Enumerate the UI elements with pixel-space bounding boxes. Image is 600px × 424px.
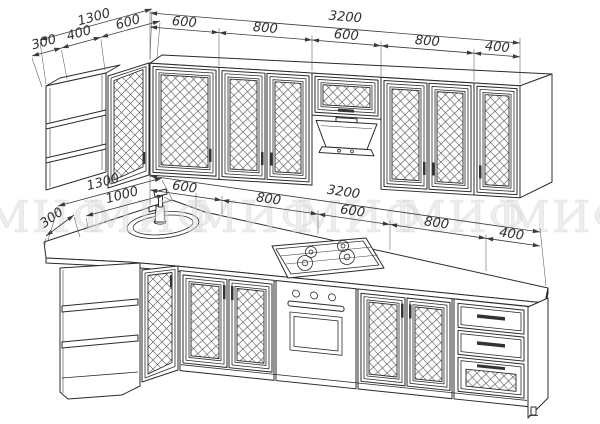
door-handle bbox=[423, 162, 426, 175]
dim-label: 800 bbox=[252, 20, 278, 37]
corner-door-lattice bbox=[148, 273, 172, 375]
dim-label: 400 bbox=[484, 39, 510, 56]
extractor-hood-canopy bbox=[316, 120, 377, 150]
lattice-door bbox=[275, 82, 301, 174]
lattice-door bbox=[369, 302, 397, 377]
dim-label: 600 bbox=[171, 14, 197, 31]
lattice-door bbox=[161, 75, 208, 168]
door-handle bbox=[143, 152, 145, 164]
lattice-door bbox=[191, 284, 219, 359]
door-handle bbox=[231, 286, 234, 300]
shelf-body bbox=[46, 73, 106, 190]
wall-cabinet-600 bbox=[150, 63, 219, 179]
lattice-door bbox=[392, 89, 419, 181]
lattice-door bbox=[237, 288, 264, 363]
wall-corner-cabinet bbox=[108, 63, 149, 188]
lattice-door bbox=[230, 79, 257, 171]
door-handle bbox=[432, 162, 435, 175]
wall-cabinet-800-right bbox=[381, 77, 474, 195]
wall-cabinets bbox=[46, 55, 552, 198]
door-handle bbox=[270, 153, 273, 166]
door-handle bbox=[409, 304, 412, 318]
lattice-flip-door bbox=[323, 85, 370, 108]
door-handle bbox=[170, 275, 172, 287]
base-run-side-panel bbox=[528, 298, 548, 418]
base-open-end-shelf bbox=[60, 263, 140, 399]
lattice-door bbox=[415, 307, 442, 382]
dim-label: 600 bbox=[333, 27, 359, 44]
dim-label: 800 bbox=[414, 33, 440, 50]
door-handle bbox=[261, 152, 264, 165]
dim-label: 3200 bbox=[328, 9, 362, 27]
base-cabinet-800-right bbox=[358, 289, 452, 399]
corner-door-lattice bbox=[114, 70, 143, 181]
leg-body bbox=[531, 407, 536, 415]
end-shelf-body bbox=[60, 263, 140, 399]
door-handle bbox=[209, 149, 212, 162]
kitchen-drawing-page: МИФ МИФ МИФ МИФ МИФ МИФ 1300 300 400 600… bbox=[0, 0, 600, 424]
base-oven-cabinet-600 bbox=[276, 281, 356, 389]
door-handle bbox=[223, 285, 226, 299]
base-drawer-unit-400 bbox=[454, 299, 528, 407]
wall-cabinet-800-left bbox=[219, 67, 312, 185]
lattice-door bbox=[485, 95, 509, 186]
wall-run-side-panel bbox=[520, 74, 552, 198]
wall-cabinet-400 bbox=[474, 83, 520, 198]
lattice-door bbox=[437, 92, 463, 184]
kitchen-drawing-canvas: МИФ МИФ МИФ МИФ МИФ МИФ 1300 300 400 600… bbox=[0, 0, 600, 424]
door-handle bbox=[479, 165, 482, 178]
base-cabinet-800-left bbox=[180, 271, 274, 381]
base-corner-sink-cabinet bbox=[142, 266, 178, 382]
door-handle bbox=[401, 303, 404, 317]
